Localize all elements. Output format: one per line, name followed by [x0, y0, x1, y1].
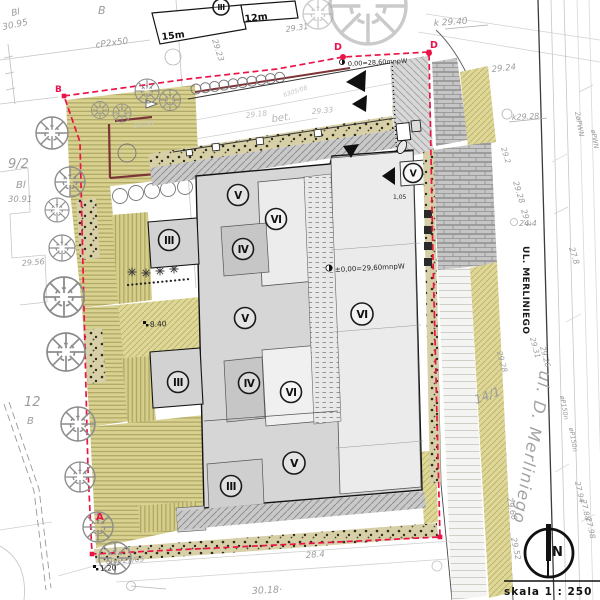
survey-label: 24.4 [519, 219, 537, 228]
survey-label: B [27, 416, 34, 427]
unit-storeys-badge: V [228, 185, 249, 206]
street-name-main: UL. MERLINIEGO [520, 246, 530, 334]
boundary-point-label: B [55, 85, 62, 95]
dimension-label: 1,20 [100, 563, 117, 573]
unit-storeys-badge: III [159, 230, 180, 251]
dimension-label: 1,05 [393, 194, 407, 201]
survey-label: 9/2 [8, 157, 29, 172]
unit-storeys-badge: IV [239, 373, 260, 394]
shrub-icon [128, 268, 137, 277]
site-plan: N skala 1 : 250 UL. MERLINIEGO ul. D. Me… [0, 0, 600, 600]
survey-label: B [98, 4, 106, 17]
svg-text:V: V [234, 190, 242, 202]
unit-storeys-badge: III [168, 372, 189, 393]
site-plan-canvas: N skala 1 : 250 UL. MERLINIEGO ul. D. Me… [0, 0, 600, 600]
dimension-label: 8.40 [150, 319, 167, 329]
north-label: N [552, 545, 563, 560]
survey-label: k29.28 [512, 112, 540, 122]
boundary-point-label: D [334, 42, 342, 53]
survey-label: Bl [16, 180, 26, 191]
unit-storeys-badge: IV [233, 239, 254, 260]
svg-text:VI: VI [271, 214, 282, 226]
svg-text:IV: IV [244, 378, 255, 390]
unit-storeys-badge: V [235, 308, 256, 329]
survey-label: 29.33 [311, 105, 333, 116]
svg-text:VI: VI [286, 387, 297, 399]
svg-text:III: III [217, 3, 225, 12]
post-marker [186, 149, 193, 156]
svg-text:IV: IV [238, 244, 249, 256]
unit-storeys-badge: VI [281, 382, 302, 403]
post-marker [256, 137, 264, 145]
utility-enclosure [396, 123, 411, 141]
unit-storeys-badge: V [404, 164, 423, 183]
utility-box [411, 120, 421, 132]
post-marker [212, 143, 220, 151]
survey-label: 12 [24, 395, 41, 410]
unit-storeys-badge: V [283, 452, 305, 474]
shrub-icon [142, 269, 151, 278]
svg-text:III: III [173, 377, 183, 389]
svg-text:VI: VI [356, 308, 368, 321]
survey-label: 28.4 [306, 550, 326, 561]
unit-storeys-badge: VI [351, 303, 373, 325]
svg-text:III: III [164, 235, 174, 247]
svg-text:V: V [290, 457, 299, 470]
unit-storeys-badge: III [213, 0, 229, 15]
post-marker [314, 129, 322, 137]
survey-label: 30.18· [252, 584, 283, 597]
building-section [331, 151, 421, 494]
unit-storeys-badge: III [221, 476, 242, 497]
boundary-point-label: A [96, 512, 104, 523]
boundary-point-label: D [430, 40, 438, 51]
unit-storeys-badge: VI [266, 209, 287, 230]
scale-label: skala 1 : 250 [504, 586, 592, 598]
svg-text:III: III [226, 481, 236, 493]
svg-text:V: V [241, 313, 249, 325]
survey-label: 30.91 [8, 195, 32, 205]
